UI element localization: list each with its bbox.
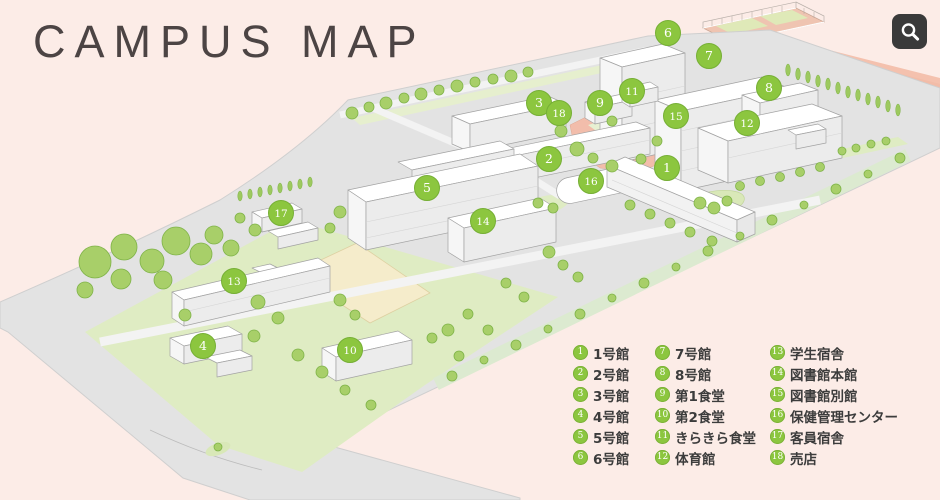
legend-item-label: 学生宿舎 (790, 343, 844, 363)
legend-item-1: 11号館 (573, 342, 655, 363)
legend-item-label: 3号館 (593, 385, 629, 405)
map-marker-5: 5 (415, 176, 440, 201)
legend-item-label: きらきら食堂 (675, 427, 756, 447)
legend-column-3: 13学生宿舎14図書館本館15図書館別館16保健管理センター17客員宿舎18売店 (770, 342, 940, 468)
svg-text:6: 6 (664, 25, 672, 40)
svg-text:14: 14 (476, 216, 490, 228)
legend-item-18: 18売店 (770, 447, 940, 468)
legend-column-2: 77号館88号館9第1食堂10第2食堂11きらきら食堂12体育館 (655, 342, 770, 468)
legend-item-label: 第2食堂 (675, 406, 725, 426)
legend-item-label: 5号館 (593, 427, 629, 447)
legend-item-number: 4 (573, 408, 588, 423)
svg-text:7: 7 (705, 48, 713, 63)
legend-item-13: 13学生宿舎 (770, 342, 940, 363)
svg-text:11: 11 (625, 86, 638, 98)
legend-item-8: 88号館 (655, 363, 770, 384)
legend-item-label: 1号館 (593, 343, 629, 363)
legend-item-number: 6 (573, 450, 588, 465)
legend-item-label: 7号館 (675, 343, 711, 363)
magnifier-icon (899, 21, 921, 43)
legend-item-number: 10 (655, 408, 670, 423)
legend-item-number: 7 (655, 345, 670, 360)
map-marker-10: 10 (338, 338, 363, 363)
svg-text:17: 17 (274, 208, 287, 220)
legend-item-label: 8号館 (675, 364, 711, 384)
svg-text:5: 5 (423, 180, 431, 195)
legend-item-number: 14 (770, 366, 785, 381)
map-marker-15: 15 (664, 104, 689, 129)
legend-item-label: 売店 (790, 448, 817, 468)
legend-item-2: 22号館 (573, 363, 655, 384)
legend-item-number: 16 (770, 408, 785, 423)
map-marker-8: 8 (757, 76, 782, 101)
map-marker-14: 14 (471, 209, 496, 234)
svg-text:9: 9 (596, 95, 604, 110)
legend-item-label: 客員宿舎 (790, 427, 844, 447)
legend-item-3: 33号館 (573, 384, 655, 405)
svg-text:15: 15 (669, 111, 682, 123)
svg-text:3: 3 (535, 95, 543, 110)
legend-item-number: 12 (655, 450, 670, 465)
legend-item-5: 55号館 (573, 426, 655, 447)
legend-item-label: 体育館 (675, 448, 716, 468)
legend-item-label: 2号館 (593, 364, 629, 384)
legend-item-number: 9 (655, 387, 670, 402)
legend-item-label: 4号館 (593, 406, 629, 426)
map-marker-6: 6 (656, 21, 681, 46)
legend-item-6: 66号館 (573, 447, 655, 468)
svg-text:2: 2 (545, 151, 553, 166)
map-marker-18: 18 (547, 101, 572, 126)
legend-item-number: 3 (573, 387, 588, 402)
legend-item-7: 77号館 (655, 342, 770, 363)
svg-text:8: 8 (765, 80, 773, 95)
zoom-button[interactable] (892, 14, 927, 49)
legend-item-number: 11 (655, 429, 670, 444)
map-marker-11: 11 (620, 79, 645, 104)
svg-text:12: 12 (740, 118, 753, 130)
svg-text:10: 10 (343, 345, 356, 357)
legend-item-number: 8 (655, 366, 670, 381)
legend-item-number: 17 (770, 429, 785, 444)
legend-item-17: 17客員宿舎 (770, 426, 940, 447)
legend-item-number: 13 (770, 345, 785, 360)
campus-map-page: 123456789101112131415161718 CAMPUS MAP 1… (0, 0, 940, 500)
svg-text:1: 1 (663, 160, 671, 175)
legend-item-number: 2 (573, 366, 588, 381)
legend-item-11: 11きらきら食堂 (655, 426, 770, 447)
legend-item-number: 15 (770, 387, 785, 402)
legend-item-16: 16保健管理センター (770, 405, 940, 426)
map-marker-13: 13 (222, 269, 247, 294)
legend-item-label: 第1食堂 (675, 385, 725, 405)
legend-item-number: 1 (573, 345, 588, 360)
legend-item-4: 44号館 (573, 405, 655, 426)
map-marker-17: 17 (269, 201, 294, 226)
svg-text:18: 18 (552, 108, 565, 120)
svg-text:13: 13 (227, 276, 240, 288)
svg-text:4: 4 (199, 338, 207, 353)
map-marker-12: 12 (735, 111, 760, 136)
map-marker-2: 2 (537, 147, 562, 172)
map-legend: 11号館22号館33号館44号館55号館66号館 77号館88号館9第1食堂10… (573, 342, 940, 468)
legend-item-label: 保健管理センター (790, 406, 898, 426)
legend-column-1: 11号館22号館33号館44号館55号館66号館 (573, 342, 655, 468)
map-marker-9: 9 (588, 91, 613, 116)
map-marker-16: 16 (579, 169, 604, 194)
legend-item-label: 6号館 (593, 448, 629, 468)
legend-item-10: 10第2食堂 (655, 405, 770, 426)
svg-text:16: 16 (584, 176, 598, 188)
legend-item-number: 5 (573, 429, 588, 444)
map-marker-4: 4 (191, 334, 216, 359)
legend-item-12: 12体育館 (655, 447, 770, 468)
map-marker-1: 1 (655, 156, 680, 181)
legend-item-9: 9第1食堂 (655, 384, 770, 405)
page-title: CAMPUS MAP (33, 16, 426, 68)
legend-item-15: 15図書館別館 (770, 384, 940, 405)
map-marker-7: 7 (697, 44, 722, 69)
legend-item-label: 図書館本館 (790, 364, 858, 384)
legend-item-number: 18 (770, 450, 785, 465)
legend-item-14: 14図書館本館 (770, 363, 940, 384)
legend-item-label: 図書館別館 (790, 385, 858, 405)
